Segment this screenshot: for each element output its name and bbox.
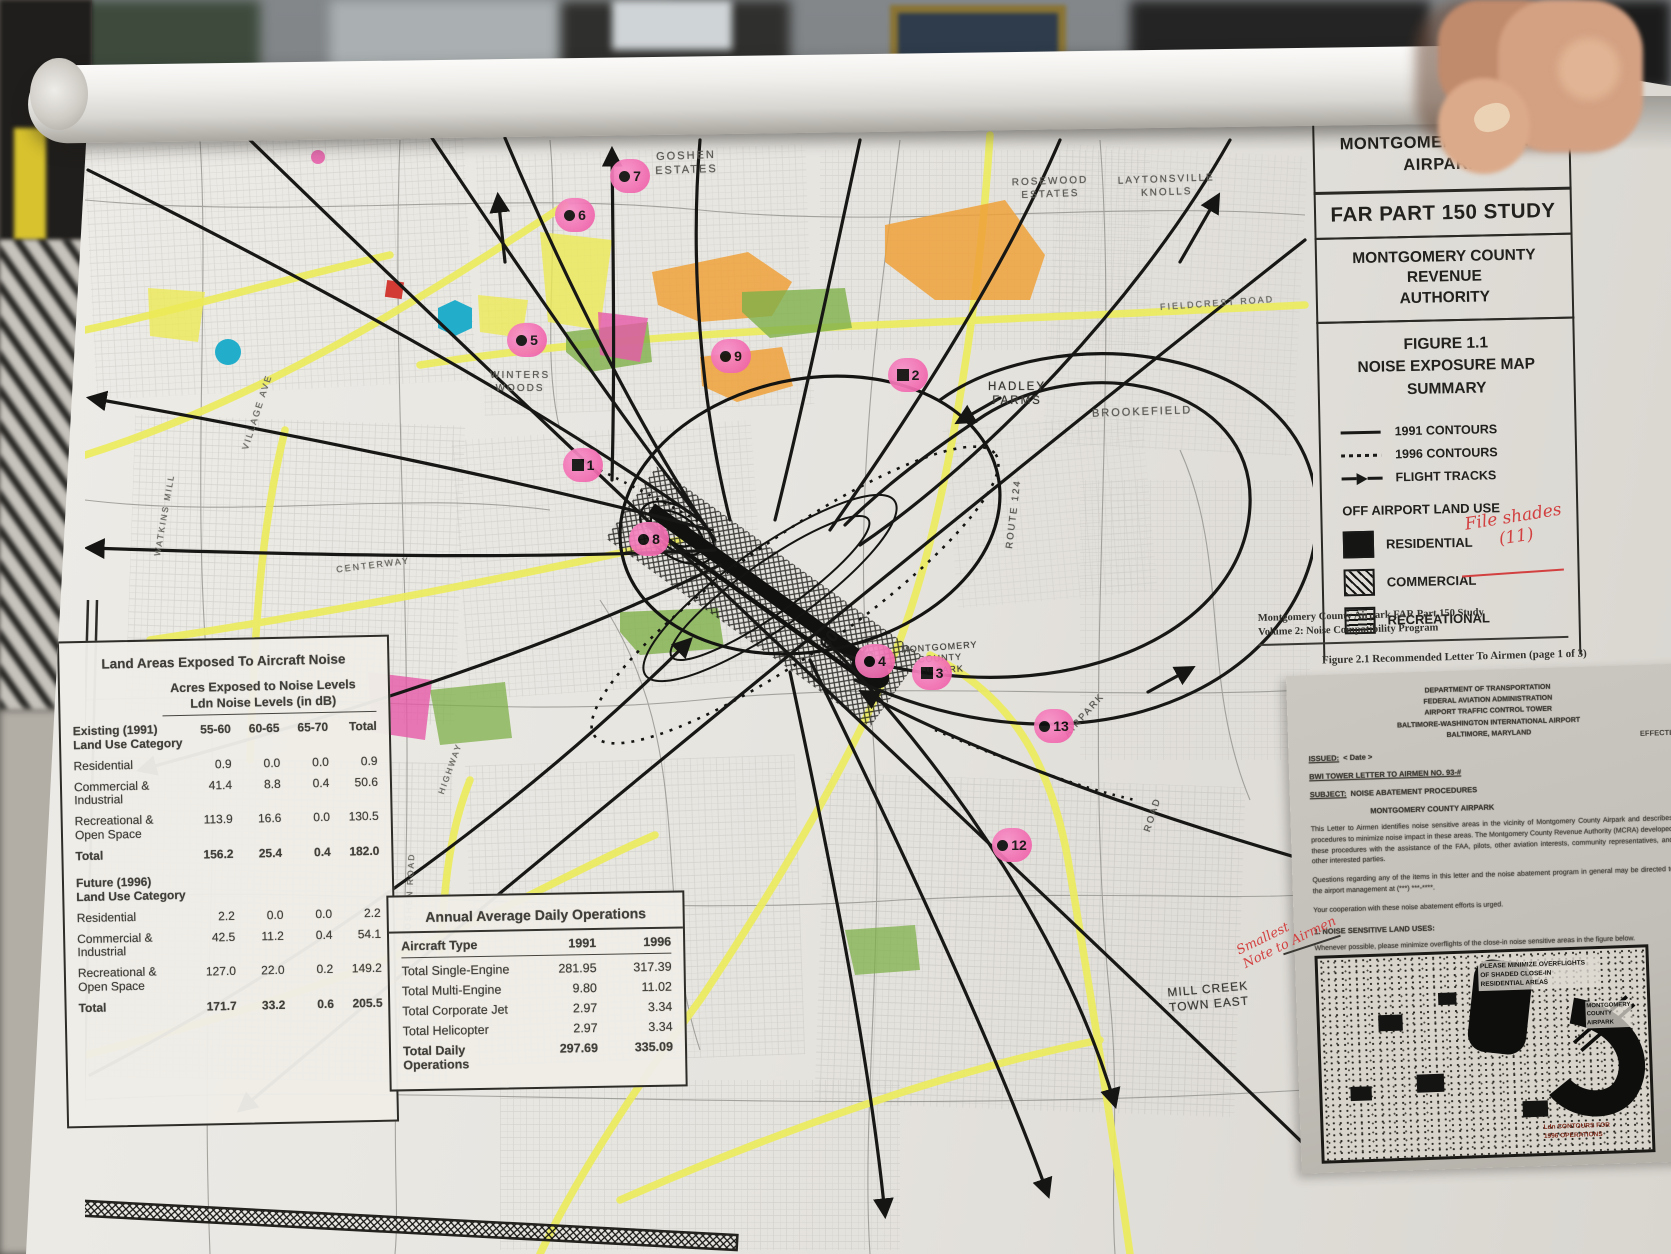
letter-body-1: This Letter to Airmen identifies noise s… <box>1311 814 1671 869</box>
subject-line-2: MONTGOMERY COUNTY AIRPARK <box>1370 797 1671 815</box>
marker-dot-symbol <box>516 335 527 346</box>
table-total-row: Total 156.2 25.4 0.4 182.0 <box>75 844 379 864</box>
table-row: Commercial & Industrial 41.4 8.8 0.4 50.… <box>74 774 379 808</box>
subject-line: SUBJECT: NOISE ABATEMENT PROCEDURES <box>1310 779 1671 799</box>
ops-row: Total Multi-Engine 9.80 11.02 <box>402 980 672 999</box>
table-row: Recreational & Open Space 127.0 22.0 0.2… <box>78 961 383 995</box>
commercial-hatch-swatch-icon <box>1344 569 1376 597</box>
place-label-goshen-estates: GOSHEN ESTATES <box>655 149 718 179</box>
legend-item-1996-contours: 1996 CONTOURS <box>1341 442 1569 465</box>
table-row: Recreational & Open Space 113.9 16.6 0.0… <box>75 809 380 843</box>
background-printer <box>612 0 732 50</box>
red-square-symbol <box>385 280 404 299</box>
solid-line-icon <box>1341 430 1385 434</box>
noise-marker-4: 4 <box>855 644 895 678</box>
dotted-line-icon <box>1341 453 1385 457</box>
marker-square-symbol <box>921 667 933 679</box>
land-areas-table: Land Areas Exposed To Aircraft Noise Acr… <box>57 635 399 1129</box>
marker-dot-symbol <box>638 534 649 545</box>
arrow-line-icon <box>1341 472 1385 485</box>
table-total-row: Total 171.7 33.2 0.6 205.5 <box>78 996 382 1016</box>
marker-dot-symbol <box>864 656 875 667</box>
letterhead: DEPARTMENT OF TRANSPORTATION FEDERAL AVI… <box>1306 678 1670 745</box>
inset-airport-label: MONTGOMERY COUNTY AIRPARK <box>1585 1000 1632 1029</box>
marker-square-symbol <box>572 459 584 471</box>
inset-caption: Ldn CONTOURS FOR 1996 OPERATIONS <box>1543 1121 1610 1141</box>
issued-line: ISSUED: < Date > <box>1308 743 1670 763</box>
noise-marker-5: 5 <box>507 323 547 357</box>
table-title: Land Areas Exposed To Aircraft Noise <box>71 651 375 672</box>
ops-total-row: Total Daily Operations 297.69 335.09 <box>403 1040 673 1073</box>
ops-header-row: Aircraft Type 1991 1996 <box>401 935 671 959</box>
residential-swatch-icon <box>1343 531 1375 559</box>
authority-title: MONTGOMERY COUNTY REVENUE AUTHORITY <box>1315 232 1575 324</box>
future-section-heading: Future (1996) Land Use Category <box>76 870 381 905</box>
noise-marker-8: 8 <box>629 522 669 556</box>
place-label-laytonsville-knolls: LAYTONSVILLE KNOLLS <box>1118 172 1216 200</box>
noise-marker-12: 12 <box>992 828 1032 862</box>
noise-marker-3: 3 <box>912 656 952 690</box>
effective-label: EFFECTIVE <box>1640 728 1671 738</box>
noise-marker-1: 1 <box>563 448 603 482</box>
letter-item-1: 1. NOISE SENSITIVE LAND USES: <box>1314 916 1671 936</box>
marker-dot-symbol <box>720 351 731 362</box>
inset-overflight-note: PLEASE MINIMIZE OVERFLIGHTS OF SHADED CL… <box>1478 957 1601 992</box>
ops-table-title: Annual Average Daily Operations <box>388 900 682 933</box>
paper-roll-end <box>30 58 88 130</box>
hand <box>1380 0 1671 215</box>
place-label-hadley-farms: HADLEY FARMS <box>988 380 1046 409</box>
table-row: Residential 2.2 0.0 0.0 2.2 <box>77 905 381 925</box>
daily-operations-table: Annual Average Daily Operations Aircraft… <box>386 890 687 1091</box>
inset-contour-map: PLEASE MINIMIZE OVERFLIGHTS OF SHADED CL… <box>1314 944 1655 1164</box>
ops-row: Total Corporate Jet 2.97 3.34 <box>402 1000 672 1019</box>
letter-body-2: Questions regarding any of the items in … <box>1312 865 1671 898</box>
table-row: Commercial & Industrial 42.5 11.2 0.4 54… <box>77 926 382 960</box>
noise-marker-7: 7 <box>610 159 650 193</box>
legend-item-flight-tracks: FLIGHT TRACKS <box>1341 465 1569 488</box>
noise-marker-9: 9 <box>711 339 751 373</box>
marker-dot-symbol <box>1039 721 1050 732</box>
noise-marker-13: 13 <box>1034 709 1074 743</box>
table-subtitle: Acres Exposed to Noise Levels Ldn Noise … <box>150 676 377 713</box>
yellow-zone <box>148 288 205 342</box>
marker-dot-symbol <box>997 840 1008 851</box>
marker-dot-symbol <box>564 210 575 221</box>
place-label-winters-woods: WINTERS WOODS <box>490 370 550 395</box>
noise-marker-6: 6 <box>555 198 595 232</box>
legend-item-1991-contours: 1991 CONTOURS <box>1340 419 1568 442</box>
photo-scene: GOSHEN ESTATES ROSEWOOD ESTATES LAYTONSV… <box>0 0 1671 1254</box>
table-header-row: Existing (1991) Land Use Category 55-60 … <box>73 719 378 753</box>
figure-title: FIGURE 1.1 NOISE EXPOSURE MAP SUMMARY <box>1325 331 1568 403</box>
knuckle-highlight <box>1558 38 1620 100</box>
noise-marker-2: 2 <box>888 358 928 392</box>
marker-dot-symbol <box>619 171 630 182</box>
letter-number: BWI TOWER LETTER TO AIRMEN NO. 93-# <box>1309 761 1671 781</box>
yellow-book-spine <box>14 128 46 240</box>
letter-body-3: Your cooperation with these noise abatem… <box>1313 895 1671 917</box>
magenta-dot <box>311 150 325 164</box>
place-label-rosewood-estates: ROSEWOOD ESTATES <box>1012 175 1089 203</box>
teal-circle-symbol <box>215 339 241 365</box>
green-zone <box>845 925 920 975</box>
marker-square-symbol <box>897 369 909 381</box>
green-zone <box>430 682 512 745</box>
ops-row: Total Helicopter 2.97 3.34 <box>403 1020 673 1039</box>
table-row: Residential 0.9 0.0 0.0 0.9 <box>73 753 377 773</box>
ops-row: Total Single-Engine 281.95 317.39 <box>402 960 672 979</box>
